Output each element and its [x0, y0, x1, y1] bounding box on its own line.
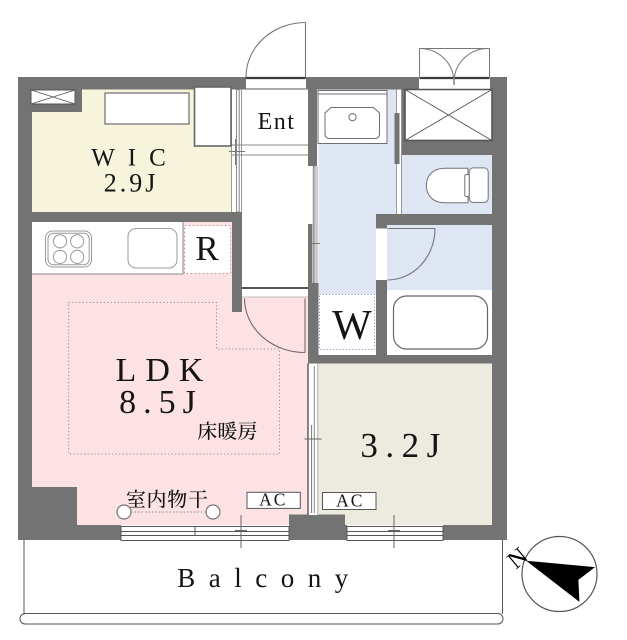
svg-text:3.2J: 3.2J	[360, 426, 447, 465]
svg-text:R: R	[195, 229, 219, 268]
svg-text:AC: AC	[336, 491, 364, 511]
svg-text:8.5J: 8.5J	[119, 384, 203, 421]
svg-text:Balcony: Balcony	[177, 563, 361, 593]
svg-text:AC: AC	[259, 490, 287, 510]
svg-text:WIC: WIC	[91, 145, 179, 172]
svg-text:2.9J: 2.9J	[104, 169, 159, 198]
svg-text:Ent: Ent	[258, 109, 296, 135]
svg-text:W: W	[332, 303, 372, 349]
